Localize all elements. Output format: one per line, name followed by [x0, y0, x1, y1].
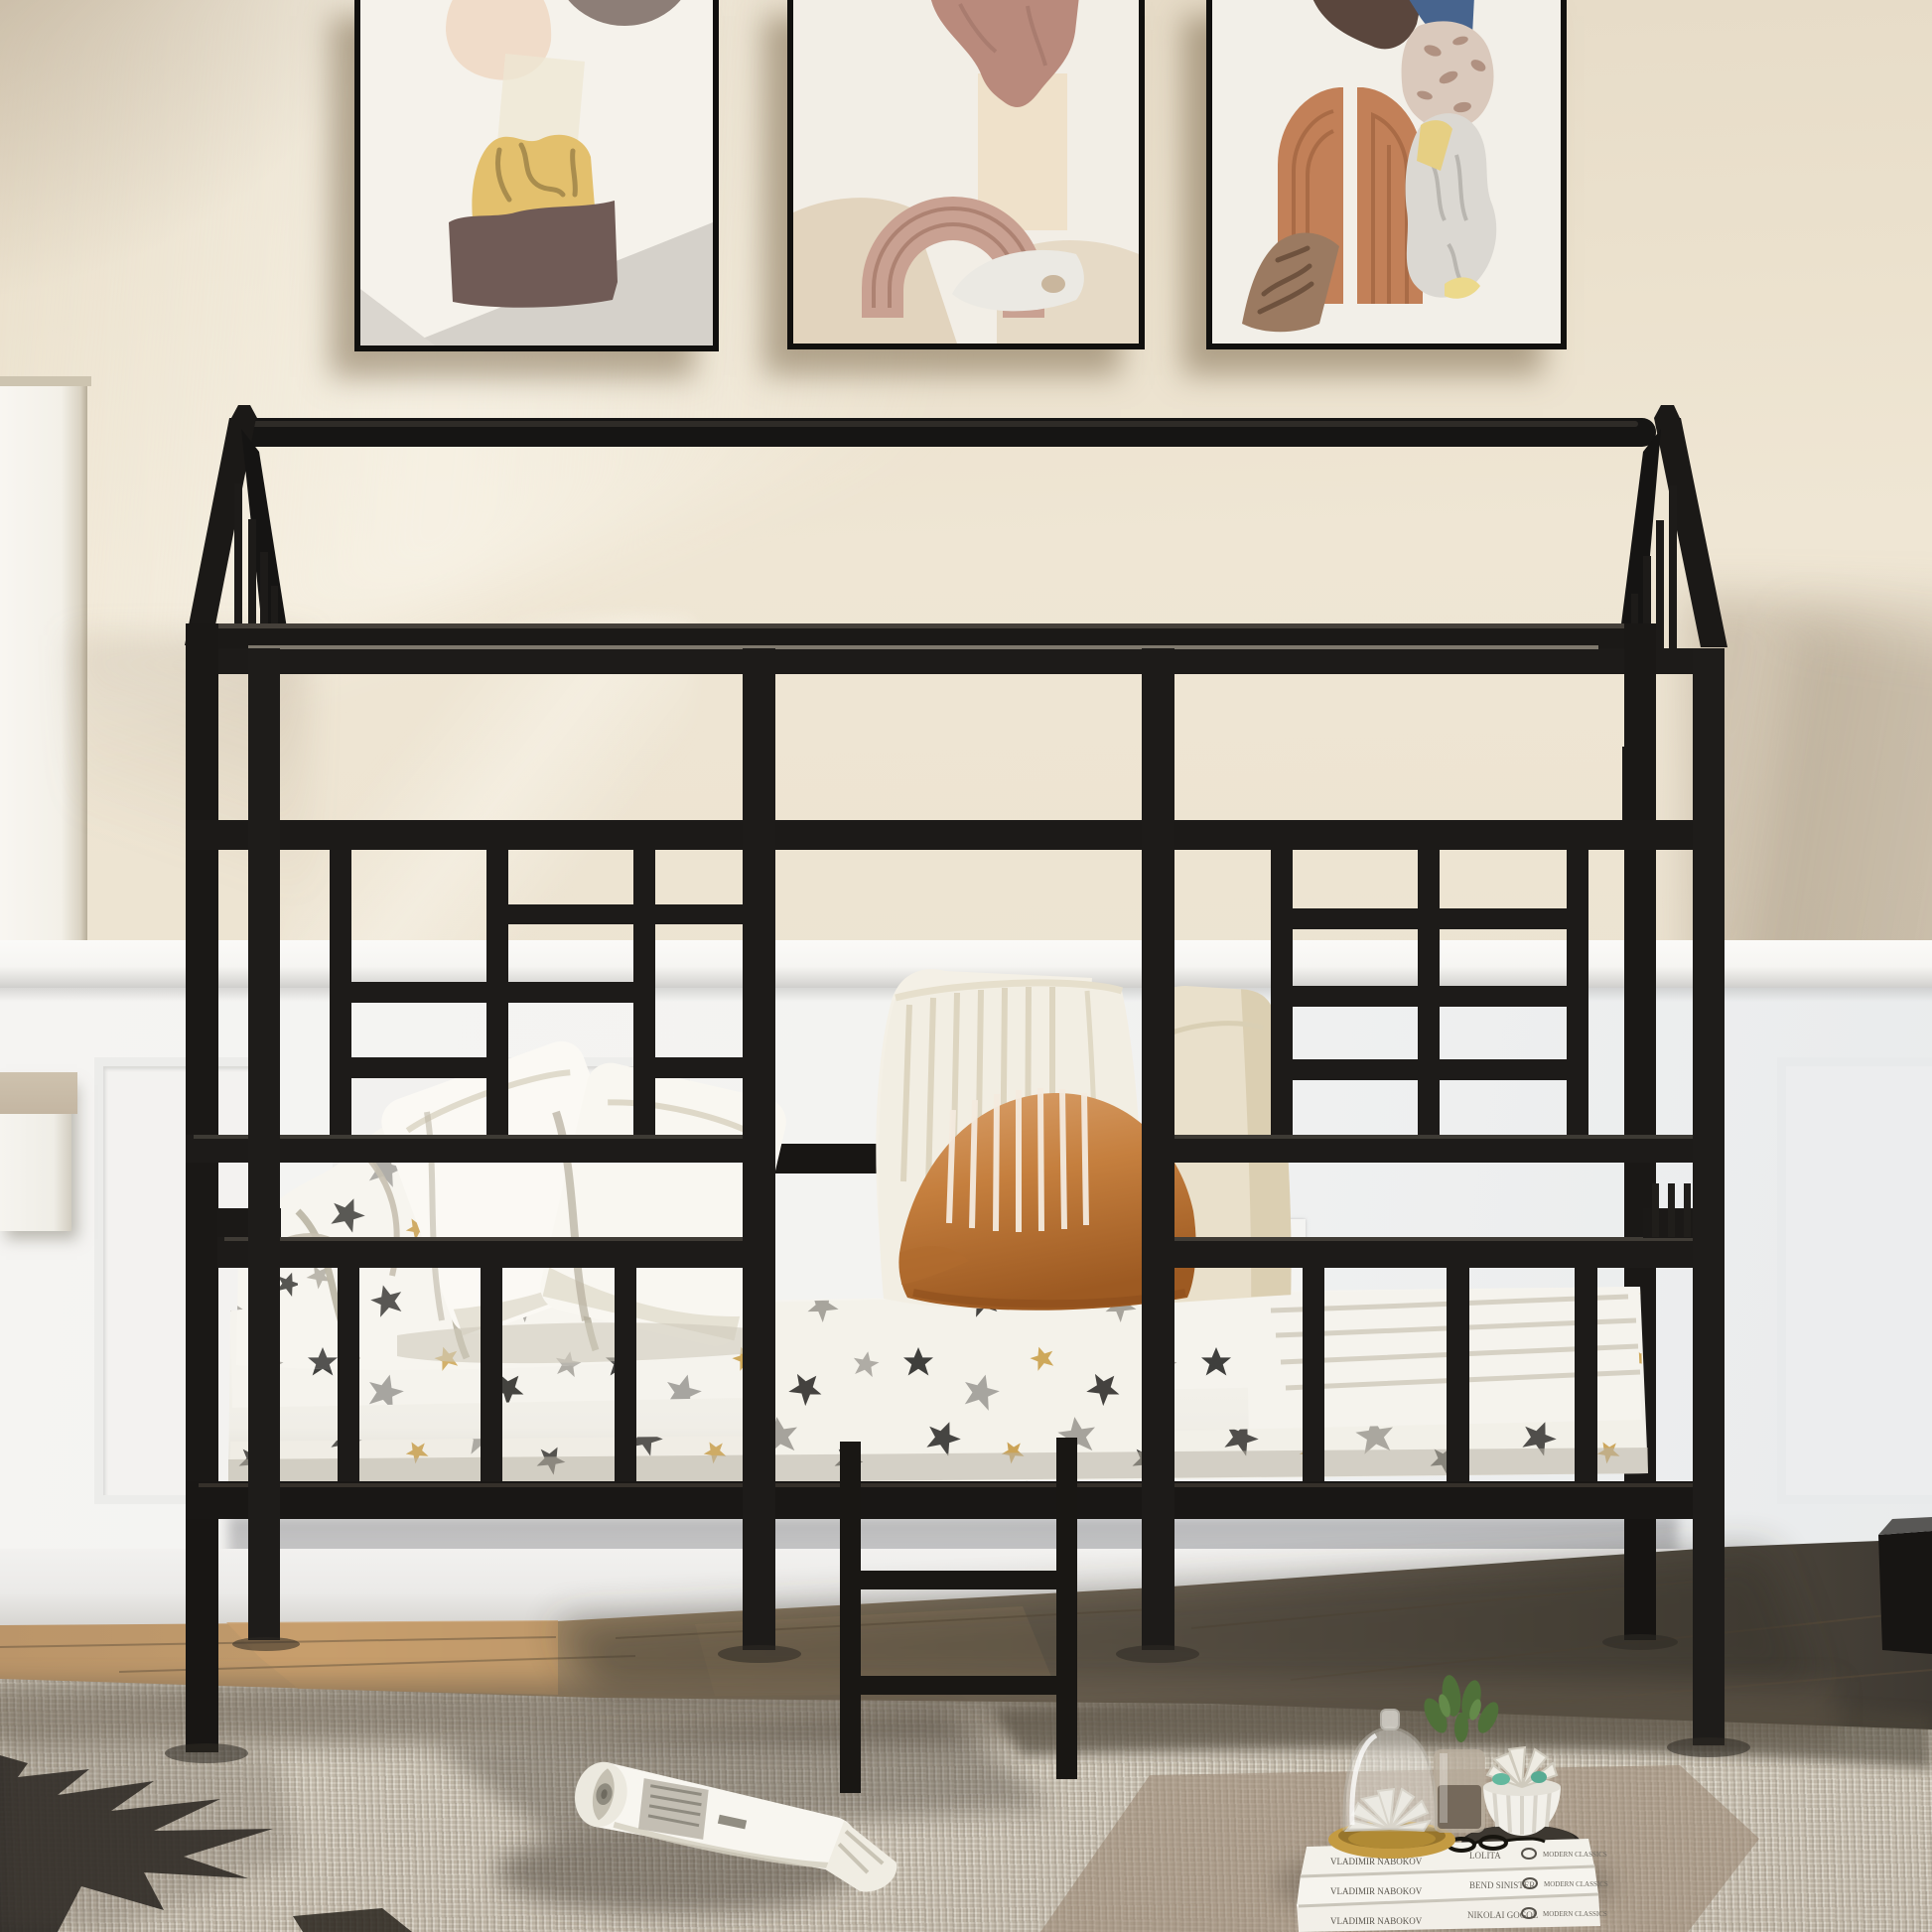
- svg-text:BEND SINISTER: BEND SINISTER: [1469, 1880, 1535, 1890]
- svg-text:MODERN CLASSICS: MODERN CLASSICS: [1543, 1910, 1607, 1918]
- svg-text:MODERN CLASSICS: MODERN CLASSICS: [1543, 1851, 1607, 1859]
- svg-text:LOLITA: LOLITA: [1469, 1851, 1501, 1861]
- svg-text:VLADIMIR NABOKOV: VLADIMIR NABOKOV: [1330, 1886, 1423, 1896]
- svg-text:VLADIMIR NABOKOV: VLADIMIR NABOKOV: [1330, 1857, 1423, 1866]
- svg-text:MODERN CLASSICS: MODERN CLASSICS: [1544, 1880, 1608, 1888]
- svg-text:VLADIMIR NABOKOV: VLADIMIR NABOKOV: [1330, 1916, 1423, 1926]
